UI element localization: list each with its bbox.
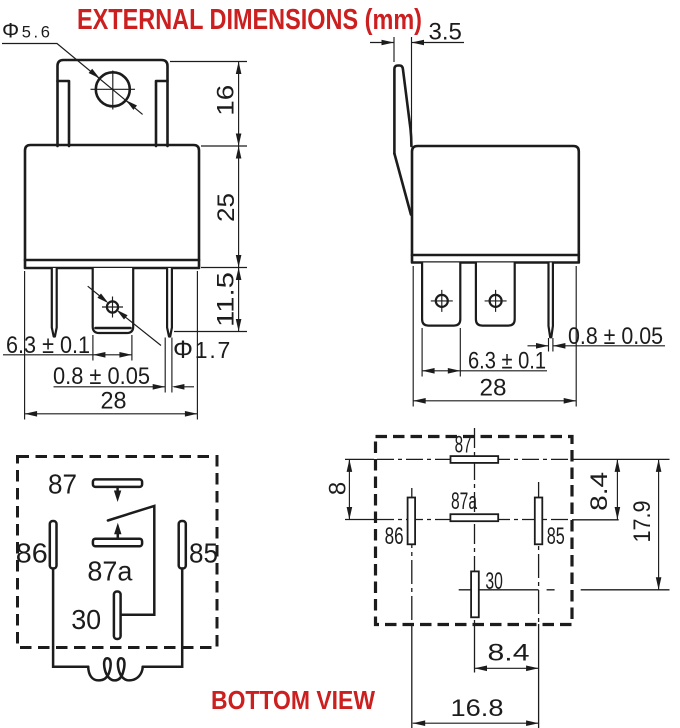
- svg-text:0.8 ± 0.05: 0.8 ± 0.05: [53, 363, 150, 390]
- svg-text:87: 87: [48, 468, 77, 499]
- svg-text:11.5: 11.5: [213, 272, 240, 327]
- svg-text:30: 30: [71, 604, 101, 635]
- svg-text:87a: 87a: [451, 488, 477, 515]
- svg-text:EXTERNAL DIMENSIONS (mm): EXTERNAL DIMENSIONS (mm): [77, 4, 422, 36]
- svg-text:17.9: 17.9: [629, 501, 656, 543]
- svg-text:87: 87: [455, 432, 472, 459]
- svg-text:28: 28: [480, 375, 507, 402]
- svg-text:85: 85: [189, 538, 218, 569]
- svg-text:25: 25: [213, 193, 240, 222]
- svg-text:8.4: 8.4: [488, 640, 530, 667]
- svg-text:8: 8: [325, 482, 352, 495]
- svg-text:Φ1.7: Φ1.7: [173, 336, 232, 364]
- svg-text:16: 16: [212, 85, 239, 116]
- svg-text:86: 86: [16, 538, 48, 569]
- svg-text:86: 86: [385, 523, 404, 550]
- svg-text:3.5: 3.5: [429, 19, 462, 46]
- svg-text:BOTTOM VIEW: BOTTOM VIEW: [211, 685, 375, 715]
- svg-text:28: 28: [101, 388, 127, 415]
- svg-text:8.4: 8.4: [586, 472, 613, 511]
- svg-text:87a: 87a: [87, 556, 132, 587]
- svg-text:16.8: 16.8: [451, 695, 504, 722]
- svg-text:85: 85: [547, 523, 565, 550]
- svg-text:30: 30: [485, 568, 503, 595]
